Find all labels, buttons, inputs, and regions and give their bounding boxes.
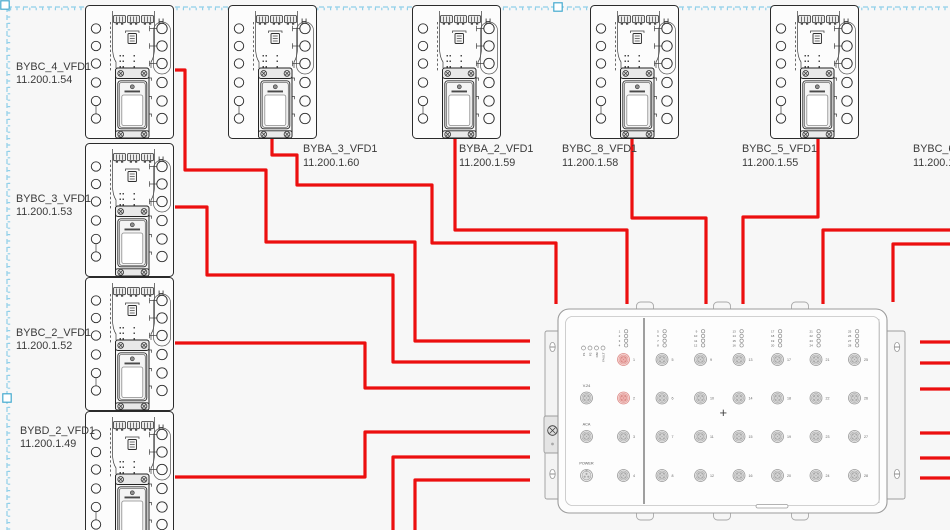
port-led (855, 339, 858, 342)
switch-port-10[interactable] (695, 392, 707, 404)
port-led (740, 330, 743, 333)
device-name-label: BYBC_4_VFD1 (16, 61, 91, 73)
switch-port-1[interactable] (618, 354, 630, 366)
vfd-device-BYBC_2_VFD1[interactable] (86, 278, 174, 411)
device-ip-label: 11.200.1.58 (562, 157, 618, 169)
port-led (855, 334, 858, 337)
port-number-label: 10 (710, 397, 714, 401)
device-name-label: BYBA_3_VFD1 (303, 143, 377, 155)
port-led-number: 27 (848, 339, 852, 343)
ethernet-switch[interactable]: + P1P2RMFAULT112233445566778899101011111… (544, 302, 905, 520)
device-ip-label: 11.200.1.53 (16, 206, 72, 218)
port-number-label: 17 (787, 358, 791, 362)
status-led-P1 (582, 346, 586, 350)
port-led (778, 330, 781, 333)
aux-port-label: POWER (579, 462, 594, 466)
port-led-number: 15 (732, 339, 736, 343)
switch-port-8[interactable] (656, 470, 668, 482)
port-led-number: 22 (809, 334, 813, 338)
device-ip-label: 11.200.1.59 (459, 157, 515, 169)
device-ip-label: 11.200.1 (913, 157, 950, 169)
port-led (778, 339, 781, 342)
port-led (624, 334, 627, 337)
switch-port-17[interactable] (772, 354, 784, 366)
port-led (817, 330, 820, 333)
port-led (624, 339, 627, 342)
device-name-label: BYBC_6_ (913, 143, 950, 155)
status-led-label: P2 (588, 352, 592, 356)
status-led-FAULT (601, 346, 605, 350)
port-number-label: 28 (864, 474, 868, 478)
port-number-label: 22 (826, 397, 830, 401)
port-led-number: 17 (771, 329, 775, 333)
port-number-label: 15 (749, 435, 753, 439)
vfd-device-BYBD_2_VFD1[interactable] (86, 412, 174, 530)
aux-port-label: ACA (583, 423, 591, 427)
switch-port-22[interactable] (810, 392, 822, 404)
port-led (855, 344, 858, 347)
port-number-label: 20 (787, 474, 791, 478)
switch-port-16[interactable] (733, 470, 745, 482)
switch-port-26[interactable] (849, 392, 861, 404)
switch-port-14[interactable] (733, 392, 745, 404)
port-number-label: 5 (672, 358, 674, 362)
port-number-label: 4 (633, 474, 635, 478)
port-led-number: 20 (771, 344, 775, 348)
device-ip-label: 11.200.1.60 (303, 157, 359, 169)
aux-port-v24[interactable] (581, 392, 593, 404)
switch-port-15[interactable] (733, 431, 745, 443)
port-led (817, 334, 820, 337)
vfd-device-BYBC_8_VFD1[interactable] (591, 6, 679, 139)
switch-port-5[interactable] (656, 354, 668, 366)
device-name-label: BYBD_2_VFD1 (20, 425, 95, 437)
device-ip-label: 11.200.1.54 (16, 74, 72, 86)
port-led (701, 334, 704, 337)
switch-port-2[interactable] (618, 392, 630, 404)
port-led (778, 344, 781, 347)
switch-port-25[interactable] (849, 354, 861, 366)
port-led (701, 330, 704, 333)
port-led (740, 344, 743, 347)
switch-port-20[interactable] (772, 470, 784, 482)
port-led (624, 344, 627, 347)
device-ip-label: 11.200.1.55 (742, 157, 798, 169)
port-led (817, 339, 820, 342)
port-led (663, 334, 666, 337)
port-number-label: 26 (864, 397, 868, 401)
switch-port-4[interactable] (618, 470, 630, 482)
port-led (740, 334, 743, 337)
device-name-label: BYBC_2_VFD1 (16, 327, 91, 339)
switch-port-28[interactable] (849, 470, 861, 482)
aux-port-power[interactable] (581, 470, 593, 482)
port-led (624, 330, 627, 333)
device-ip-label: 11.200.1.49 (20, 438, 76, 450)
switch-bottom-slot (756, 505, 788, 509)
port-led (740, 339, 743, 342)
vfd-device-BYBA_2_VFD1[interactable] (413, 6, 501, 139)
switch-port-27[interactable] (849, 431, 861, 443)
device-name-label: BYBC_3_VFD1 (16, 193, 91, 205)
port-led-number: 23 (809, 339, 813, 343)
status-led-label: FAULT (601, 352, 605, 362)
diagram-stage: H (0, 0, 950, 530)
port-number-label: 14 (749, 397, 753, 401)
port-led (855, 330, 858, 333)
port-led-number: 26 (848, 334, 852, 338)
port-number-label: 23 (826, 435, 830, 439)
port-led-number: 25 (848, 329, 852, 333)
port-number-label: 9 (710, 358, 712, 362)
port-led-number: 16 (732, 344, 736, 348)
port-number-label: 6 (672, 397, 674, 401)
port-number-label: 16 (749, 474, 753, 478)
port-led-number: 14 (732, 334, 736, 338)
port-number-label: 2 (633, 397, 635, 401)
switch-port-24[interactable] (810, 470, 822, 482)
port-led (778, 334, 781, 337)
port-number-label: 11 (710, 435, 714, 439)
port-number-label: 12 (710, 474, 714, 478)
selection-handle[interactable] (3, 394, 11, 402)
port-number-label: 21 (826, 358, 830, 362)
device-ip-label: 11.200.1.52 (16, 340, 72, 352)
port-led-number: 10 (694, 334, 698, 338)
device-name-label: BYBC_8_VFD1 (562, 143, 637, 155)
device-name-label: BYBA_2_VFD1 (459, 143, 533, 155)
switch-port-12[interactable] (695, 470, 707, 482)
switch-port-19[interactable] (772, 431, 784, 443)
switch-center-mark: + (720, 405, 728, 420)
switch-port-13[interactable] (733, 354, 745, 366)
port-number-label: 7 (672, 435, 674, 439)
port-led-number: 24 (809, 344, 813, 348)
port-led-number: 21 (809, 329, 813, 333)
port-led (701, 339, 704, 342)
vfd-device-BYBC_5_VFD1[interactable] (771, 6, 859, 139)
port-number-label: 27 (864, 435, 868, 439)
diagram-canvas[interactable]: H (0, 0, 950, 530)
status-led-label: RM (595, 352, 599, 357)
port-led (663, 330, 666, 333)
port-number-label: 18 (787, 397, 791, 401)
aux-port-aca[interactable] (581, 431, 593, 443)
switch-port-23[interactable] (810, 431, 822, 443)
port-led-number: 12 (694, 344, 698, 348)
vfd-device-BYBC_4_VFD1[interactable] (86, 6, 174, 139)
port-number-label: 19 (787, 435, 791, 439)
port-led (701, 344, 704, 347)
switch-port-11[interactable] (695, 431, 707, 443)
port-number-label: 24 (826, 474, 830, 478)
port-led-number: 13 (732, 329, 736, 333)
vfd-device-BYBA_3_VFD1[interactable] (229, 6, 317, 139)
selection-handle[interactable] (554, 3, 562, 11)
port-led (663, 344, 666, 347)
port-led (817, 344, 820, 347)
switch-port-3[interactable] (618, 431, 630, 443)
switch-port-21[interactable] (810, 354, 822, 366)
port-led-number: 28 (848, 344, 852, 348)
vfd-device-BYBC_3_VFD1[interactable] (86, 144, 174, 277)
port-led (663, 339, 666, 342)
port-number-label: 3 (633, 435, 635, 439)
status-led-RM (595, 346, 599, 350)
switch-port-7[interactable] (656, 431, 668, 443)
port-number-label: 1 (633, 358, 635, 362)
device-name-label: BYBC_5_VFD1 (742, 143, 817, 155)
port-number-label: 13 (749, 358, 753, 362)
selection-handle[interactable] (1, 1, 9, 9)
switch-port-9[interactable] (695, 354, 707, 366)
aux-port-label: V.24 (583, 384, 590, 388)
port-led-number: 11 (694, 339, 697, 343)
port-number-label: 25 (864, 358, 868, 362)
port-led-number: 19 (771, 339, 775, 343)
status-led-label: P1 (582, 352, 586, 356)
port-number-label: 8 (672, 474, 674, 478)
port-led-number: 18 (771, 334, 775, 338)
status-led-P2 (588, 346, 592, 350)
switch-port-6[interactable] (656, 392, 668, 404)
switch-port-18[interactable] (772, 392, 784, 404)
